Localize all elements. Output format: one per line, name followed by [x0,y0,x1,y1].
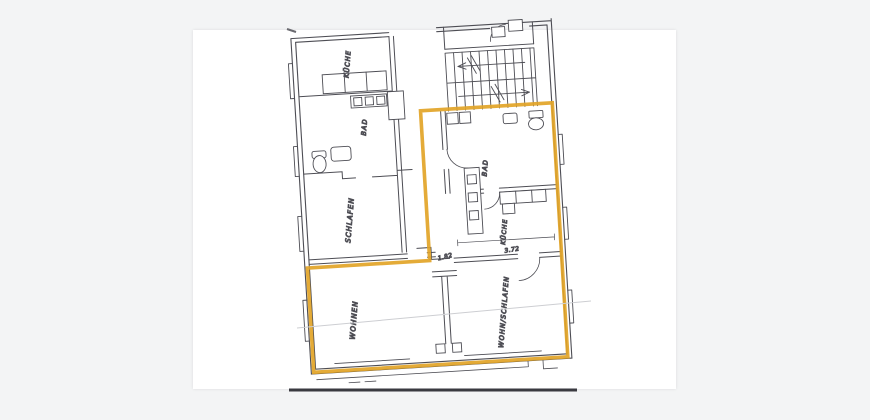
apartment-highlight-outline [298,103,568,373]
cistern [529,110,543,118]
counter [322,71,387,94]
staircase [445,44,538,111]
door-post [436,344,446,354]
sink [503,113,518,124]
room-label-kueche-right: KÜCHE [500,218,509,245]
fixtures-left-kitchen [322,70,405,124]
appliance [468,193,478,203]
floor-plan-drawing: KÜCHE BAD SCHLAFEN WOHNEN BAD KÜCHE WOHN… [287,17,577,385]
closet [508,19,523,31]
appliance [502,203,515,214]
appliance [469,211,479,221]
appliance [467,175,477,185]
burner [354,97,362,105]
counter [500,189,547,204]
toilet [528,117,544,130]
sink [331,146,352,161]
scan-corner-mark [287,29,296,32]
fixtures-left-bath [312,146,352,173]
room-label-schlafen: SCHLAFEN [344,197,356,243]
floor-plan: KÜCHE BAD SCHLAFEN WOHNEN BAD KÜCHE WOHN… [0,0,870,420]
door-arcs [440,23,541,284]
room-label-bad-left: BAD [360,118,369,136]
wall-pillar [387,91,405,120]
burner [365,97,373,105]
washer [447,113,459,125]
dimension-label-372: 3.72 [504,245,520,254]
room-label-wohnen: WOHNEN [349,300,360,340]
room-label-wohn-schlafen: WOHN/SCHLAFEN [497,276,511,349]
washer [459,112,471,124]
closet [492,27,506,38]
stair-direction-arrows-icon [457,59,530,100]
scan-crease-line [297,301,591,328]
room-label-bad-right: BAD [480,159,489,177]
door-post [452,343,462,353]
burner [377,96,385,104]
stair-treads [454,48,534,111]
dimension-label-182: 1.82 [437,252,453,262]
fixtures-right-bath [447,107,544,135]
viewer-background: KÜCHE BAD SCHLAFEN WOHNEN BAD KÜCHE WOHN… [0,0,870,420]
